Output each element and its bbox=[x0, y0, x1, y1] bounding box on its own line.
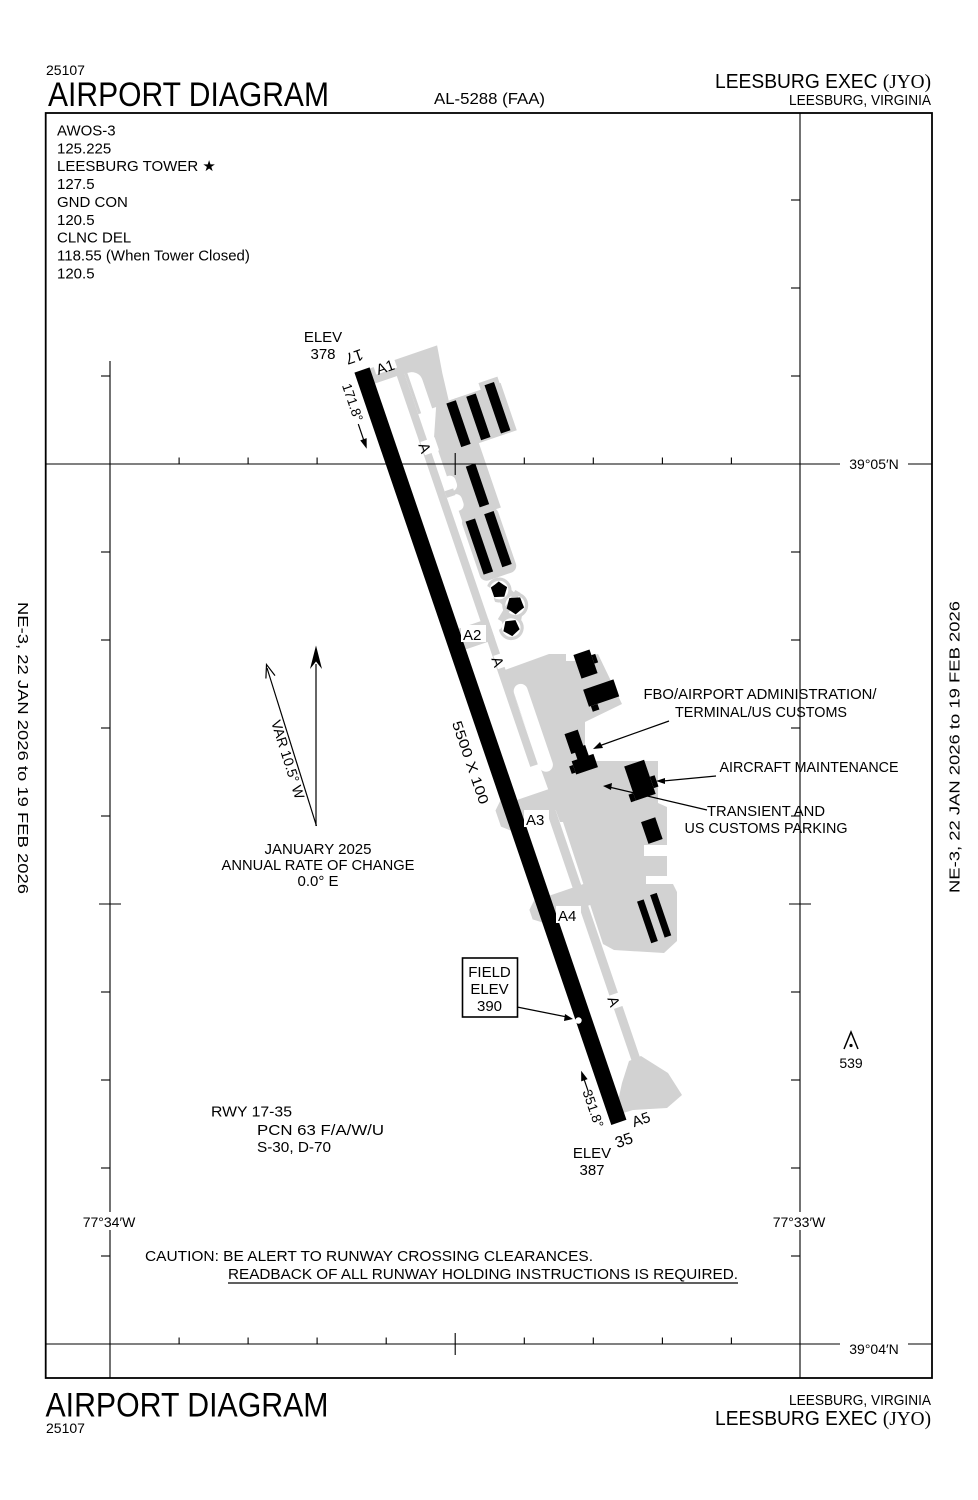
svg-text:120.5: 120.5 bbox=[57, 212, 95, 229]
svg-text:77°33′W: 77°33′W bbox=[773, 1214, 826, 1230]
svg-text:ELEV: ELEV bbox=[304, 329, 342, 346]
svg-text:ELEV: ELEV bbox=[470, 981, 508, 998]
svg-text:387: 387 bbox=[579, 1162, 604, 1179]
svg-text:S-30, D-70: S-30, D-70 bbox=[257, 1139, 331, 1156]
svg-text:A4: A4 bbox=[558, 908, 576, 925]
svg-text:378: 378 bbox=[310, 346, 335, 363]
svg-text:AL-5288 (FAA): AL-5288 (FAA) bbox=[434, 91, 545, 108]
svg-text:AIRPORT DIAGRAM: AIRPORT DIAGRAM bbox=[46, 1387, 329, 1425]
svg-text:ANNUAL RATE OF CHANGE: ANNUAL RATE OF CHANGE bbox=[222, 857, 415, 874]
svg-text:CAUTION: BE ALERT TO RUNWAY CR: CAUTION: BE ALERT TO RUNWAY CROSSING CLE… bbox=[145, 1248, 593, 1265]
svg-text:LEESBURG TOWER ★: LEESBURG TOWER ★ bbox=[57, 158, 216, 175]
svg-text:AWOS-3: AWOS-3 bbox=[57, 123, 116, 140]
svg-text:120.5: 120.5 bbox=[57, 265, 95, 282]
svg-text:390: 390 bbox=[477, 998, 502, 1015]
svg-text:LEESBURG, VIRGINIA: LEESBURG, VIRGINIA bbox=[789, 1393, 931, 1409]
svg-text:GND CON: GND CON bbox=[57, 194, 128, 211]
svg-text:A3: A3 bbox=[526, 812, 544, 829]
svg-text:125.225: 125.225 bbox=[57, 140, 111, 157]
svg-text:39°04′N: 39°04′N bbox=[849, 1341, 898, 1357]
svg-text:77°34′W: 77°34′W bbox=[83, 1214, 136, 1230]
svg-text:0.0° E: 0.0° E bbox=[297, 873, 338, 890]
svg-text:TRANSIENT AND: TRANSIENT AND bbox=[707, 803, 825, 820]
svg-text:25107: 25107 bbox=[46, 1420, 85, 1436]
svg-text:A2: A2 bbox=[463, 627, 481, 644]
svg-text:39°05′N: 39°05′N bbox=[849, 456, 898, 472]
svg-text:RWY 17-35: RWY 17-35 bbox=[211, 1104, 292, 1121]
svg-text:NE-3, 22 JAN 2026 to 19 FEB: NE-3, 22 JAN 2026 to 19 FEB 2026 bbox=[14, 602, 31, 894]
svg-text:FBO/AIRPORT ADMINISTRATION/: FBO/AIRPORT ADMINISTRATION/ bbox=[644, 686, 878, 703]
svg-text:LEESBURG, VIRGINIA: LEESBURG, VIRGINIA bbox=[789, 93, 931, 109]
svg-text:NE-3, 22 JAN 2026 to 19 FEB: NE-3, 22 JAN 2026 to 19 FEB 2026 bbox=[947, 601, 964, 893]
svg-text:ELEV: ELEV bbox=[573, 1145, 611, 1162]
svg-text:TERMINAL/US CUSTOMS: TERMINAL/US CUSTOMS bbox=[675, 704, 847, 721]
svg-text:LEESBURG EXEC (JYO): LEESBURG EXEC (JYO) bbox=[715, 1408, 931, 1430]
svg-text:JANUARY 2025: JANUARY 2025 bbox=[264, 841, 371, 858]
svg-text:US CUSTOMS PARKING: US CUSTOMS PARKING bbox=[685, 820, 848, 837]
svg-text:PCN 63 F/A/W/U: PCN 63 F/A/W/U bbox=[257, 1122, 384, 1139]
svg-text:118.55 (When Tower Closed): 118.55 (When Tower Closed) bbox=[57, 248, 250, 265]
svg-text:127.5: 127.5 bbox=[57, 176, 95, 193]
svg-text:AIRCRAFT MAINTENANCE: AIRCRAFT MAINTENANCE bbox=[720, 759, 899, 776]
svg-text:FIELD: FIELD bbox=[468, 964, 511, 981]
svg-text:CLNC DEL: CLNC DEL bbox=[57, 230, 131, 247]
svg-text:READBACK OF ALL RUNWAY HOLDING: READBACK OF ALL RUNWAY HOLDING INSTRUCTI… bbox=[228, 1266, 738, 1283]
svg-text:LEESBURG EXEC (JYO): LEESBURG EXEC (JYO) bbox=[715, 71, 931, 93]
svg-text:539: 539 bbox=[839, 1055, 863, 1071]
svg-text:AIRPORT DIAGRAM: AIRPORT DIAGRAM bbox=[48, 76, 329, 114]
